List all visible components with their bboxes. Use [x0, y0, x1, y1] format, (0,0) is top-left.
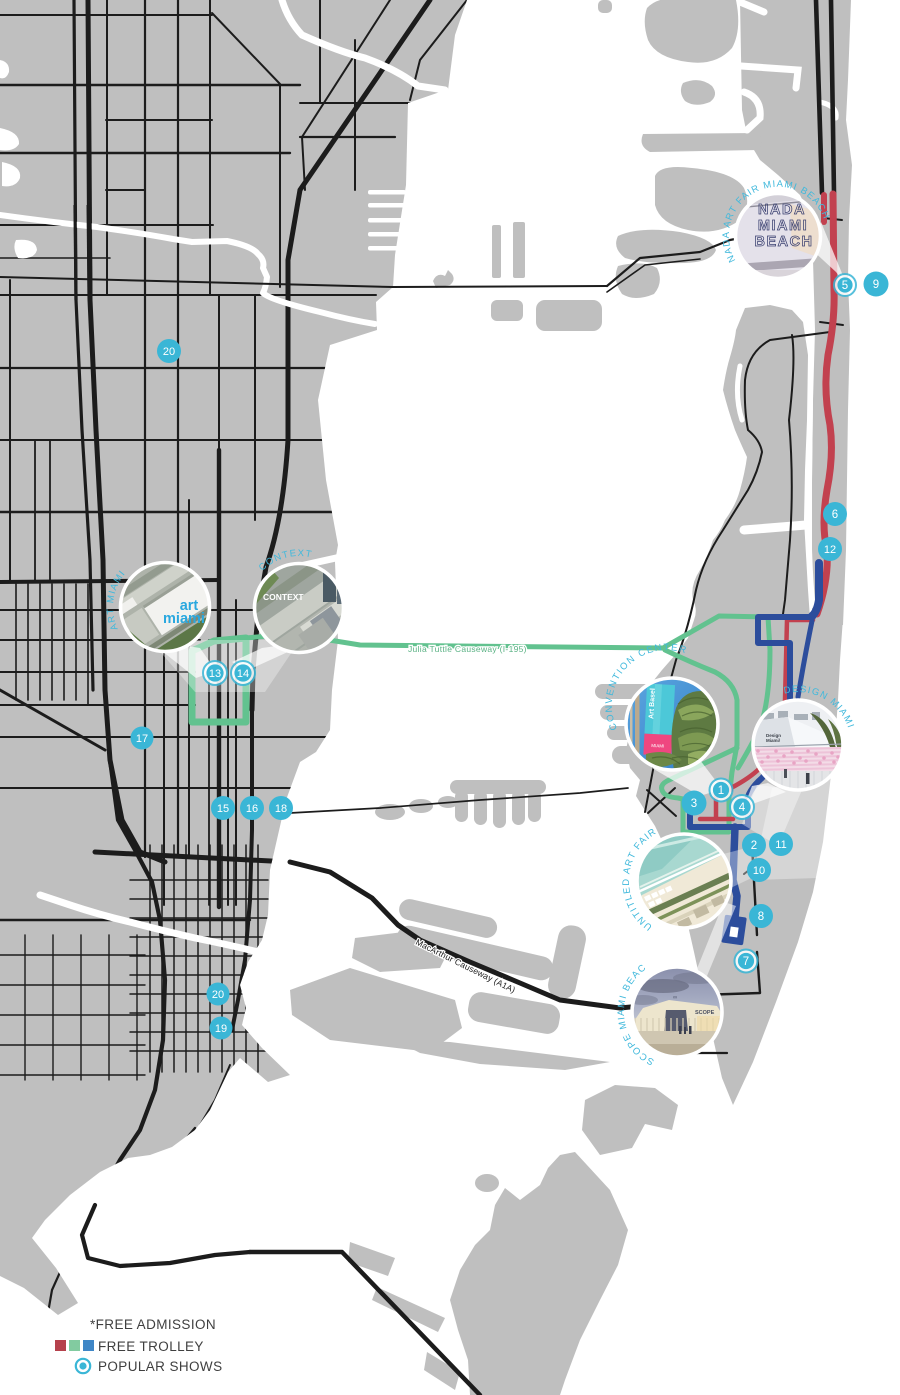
- svg-text:MIAMI: MIAMI: [651, 743, 664, 749]
- svg-text:7: 7: [743, 956, 749, 968]
- svg-text:9: 9: [873, 279, 879, 291]
- svg-text:Julia Tuttle Causeway (I-195): Julia Tuttle Causeway (I-195): [408, 644, 527, 654]
- svg-text:NADA: NADA: [758, 202, 806, 218]
- svg-text:12: 12: [824, 544, 836, 556]
- svg-text:miami: miami: [163, 611, 205, 627]
- svg-text:SCOPE: SCOPE: [695, 1010, 715, 1016]
- svg-text:CONTEXT: CONTEXT: [263, 592, 304, 602]
- svg-text:15: 15: [217, 803, 229, 815]
- svg-text:17: 17: [136, 733, 148, 745]
- svg-text:5: 5: [842, 280, 848, 292]
- svg-text:8: 8: [758, 911, 764, 923]
- svg-text:∞: ∞: [673, 995, 677, 1001]
- svg-text:FREE TROLLEY: FREE TROLLEY: [98, 1339, 204, 1354]
- svg-text:6: 6: [832, 509, 838, 521]
- svg-text:Miami/: Miami/: [766, 738, 781, 743]
- svg-text:18: 18: [275, 803, 287, 815]
- svg-text:13: 13: [209, 668, 221, 680]
- svg-text:20: 20: [212, 989, 224, 1001]
- svg-text:3: 3: [691, 798, 697, 810]
- svg-text:BEACH: BEACH: [754, 234, 813, 250]
- svg-text:10: 10: [753, 865, 765, 877]
- svg-text:POPULAR SHOWS: POPULAR SHOWS: [98, 1359, 222, 1374]
- svg-text:*FREE ADMISSION: *FREE ADMISSION: [90, 1317, 216, 1332]
- svg-text:19: 19: [215, 1023, 227, 1035]
- svg-text:20: 20: [163, 346, 175, 358]
- svg-text:MIAMI: MIAMI: [758, 218, 808, 234]
- svg-text:16: 16: [246, 803, 258, 815]
- svg-text:1: 1: [718, 785, 724, 797]
- svg-text:4: 4: [739, 802, 746, 814]
- svg-text:2: 2: [751, 840, 757, 852]
- svg-text:11: 11: [775, 839, 786, 851]
- svg-text:14: 14: [237, 668, 249, 680]
